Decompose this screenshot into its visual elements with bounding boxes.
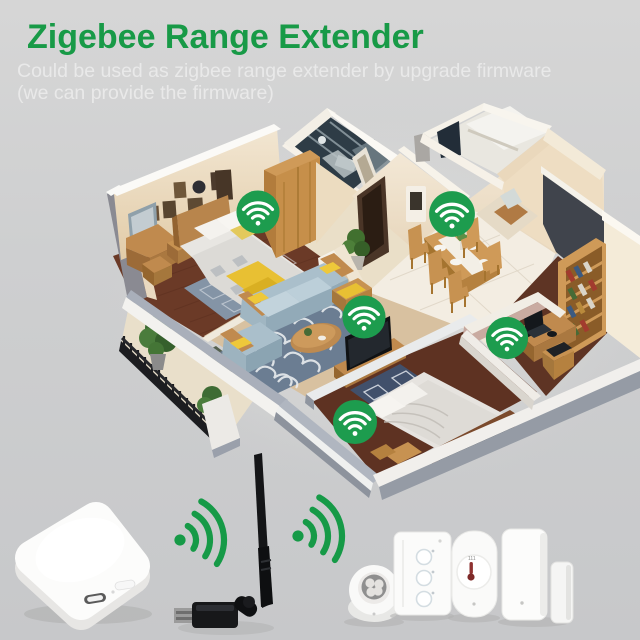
svg-text:111: 111 bbox=[468, 556, 476, 562]
